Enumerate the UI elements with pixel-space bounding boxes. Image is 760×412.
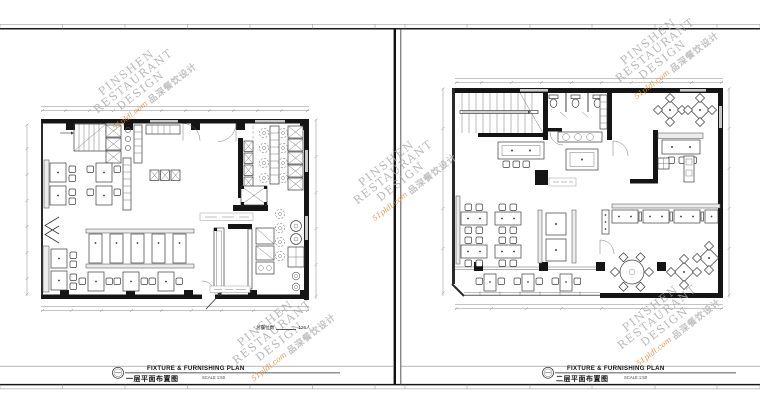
floor2-stairs <box>460 93 543 133</box>
floor1-service-counter <box>200 213 253 293</box>
drawing-canvas: PINSHEN RESTAURANT DESIGN 51pldl.com 品深餐… <box>0 0 760 412</box>
floor1-plan <box>26 107 318 313</box>
floor1-shaft <box>241 186 267 205</box>
floor2-private-dining <box>653 93 716 163</box>
floor2-wait-counter <box>498 142 544 168</box>
floor1-title-en: FIXTURE & FURNISHING PLAN <box>147 365 245 372</box>
floor2-plan <box>442 79 731 311</box>
floor2-scale-label: SCALE 1:50 <box>624 375 647 380</box>
floor1-scale-label: SCALE 1:50 <box>202 375 225 380</box>
floor1-dining-tables <box>79 229 194 291</box>
floor1-booth-seating <box>43 158 131 292</box>
floorplans-drawing <box>0 0 760 412</box>
floor2-title-en: FIXTURE & FURNISHING PLAN <box>567 365 665 372</box>
floor2-booth-seating <box>456 196 581 291</box>
floor1-kitchen-line <box>288 126 303 190</box>
seat-count-value: 126人 <box>298 325 310 331</box>
floor2-prep-room <box>658 156 694 182</box>
seat-count-annotation: 总餐位数 126人 <box>256 325 311 331</box>
floor2-banquet-area <box>602 204 720 291</box>
floor2-small-room <box>549 149 598 186</box>
seat-count-label: 总餐位数 <box>256 325 274 331</box>
floor1-communal-table <box>259 126 287 184</box>
floor2-toilets <box>549 93 607 142</box>
floor2-title-cn: 二层平面布置图 <box>556 374 609 384</box>
entrance-chevron <box>45 217 59 243</box>
floor1-wash-area <box>256 209 304 290</box>
floor1-title-cn: 一层平面布置图 <box>126 374 179 384</box>
seat-count-leader-line <box>276 329 296 330</box>
